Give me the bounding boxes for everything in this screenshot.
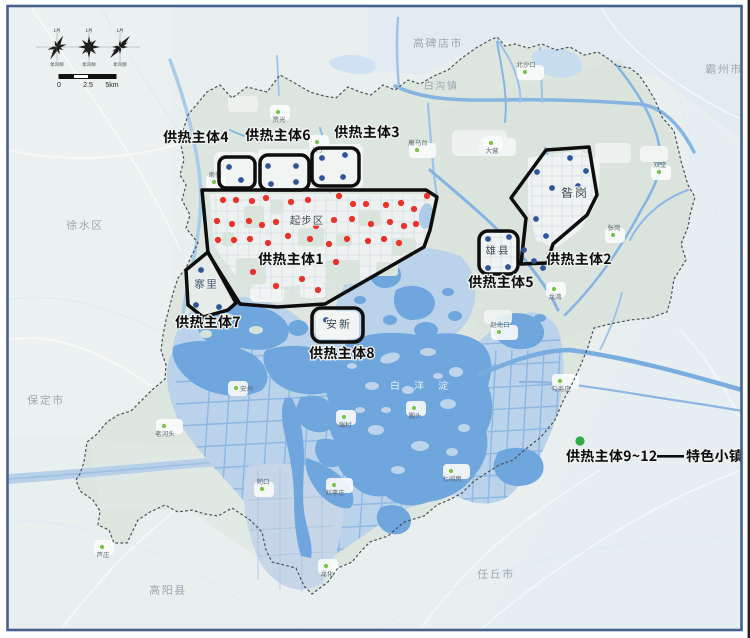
svg-text:0: 0 <box>57 82 61 89</box>
svg-text:2.5: 2.5 <box>83 82 93 89</box>
svg-text:5km: 5km <box>105 82 118 89</box>
